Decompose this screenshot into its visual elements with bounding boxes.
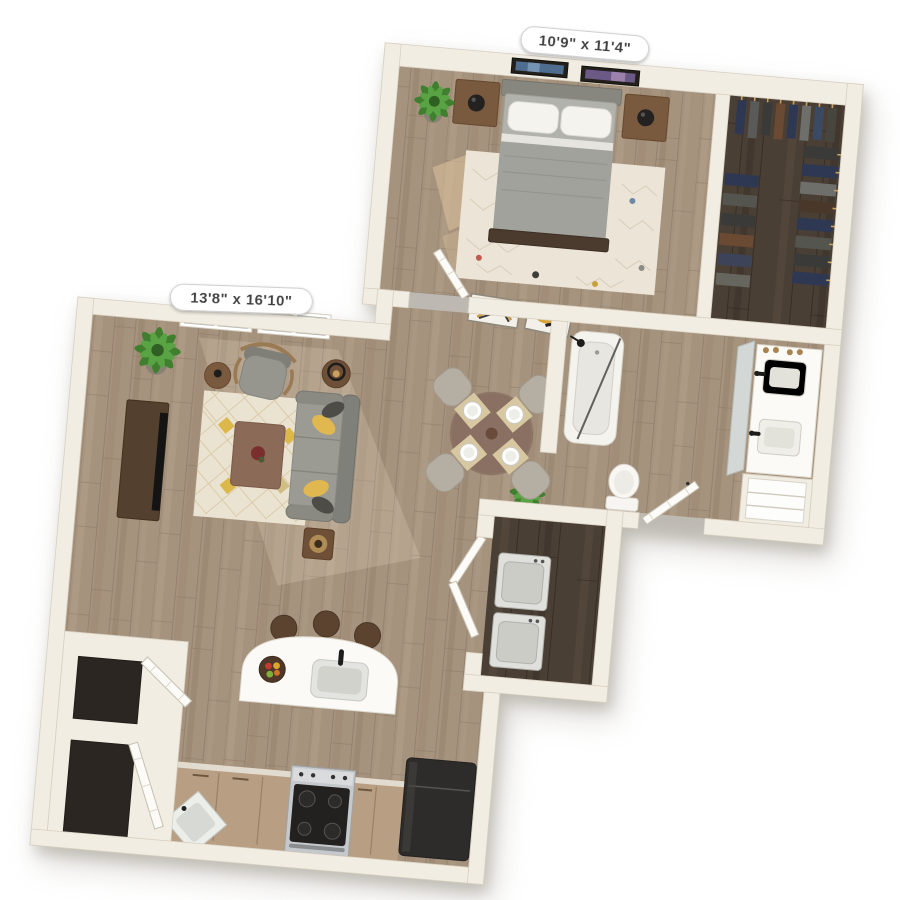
vanity-basin-2 <box>764 426 796 449</box>
sofa <box>285 390 360 523</box>
bed-pillow-right <box>560 105 612 138</box>
living-room-dimensions-text: 13'8" x 16'10" <box>190 289 293 310</box>
vanity-basin-1 <box>769 367 801 390</box>
storage-niche-1 <box>73 656 142 723</box>
bathtub-basin <box>572 341 616 436</box>
coffee-table <box>230 421 285 489</box>
range-stove <box>284 765 355 856</box>
vanity <box>727 340 823 483</box>
side-table-south <box>302 528 335 561</box>
floor-plan: 10'9" x 11'4" 13'8" x 16'10" <box>30 0 866 900</box>
wall-laundry-left-upper <box>477 515 495 538</box>
linen-shelves <box>739 474 813 528</box>
storage-niche-2 <box>63 740 135 845</box>
floor-plan-canvas: 10'9" x 11'4" 13'8" x 16'10" <box>0 0 900 900</box>
bed-pillow-left <box>507 101 559 134</box>
dimension-label-living-room: 13'8" x 16'10" <box>170 284 313 315</box>
dryer <box>489 612 546 670</box>
floor-plan-stage: 10'9" x 11'4" 13'8" x 16'10" <box>0 0 900 900</box>
washer <box>495 553 552 611</box>
refrigerator <box>399 757 477 861</box>
